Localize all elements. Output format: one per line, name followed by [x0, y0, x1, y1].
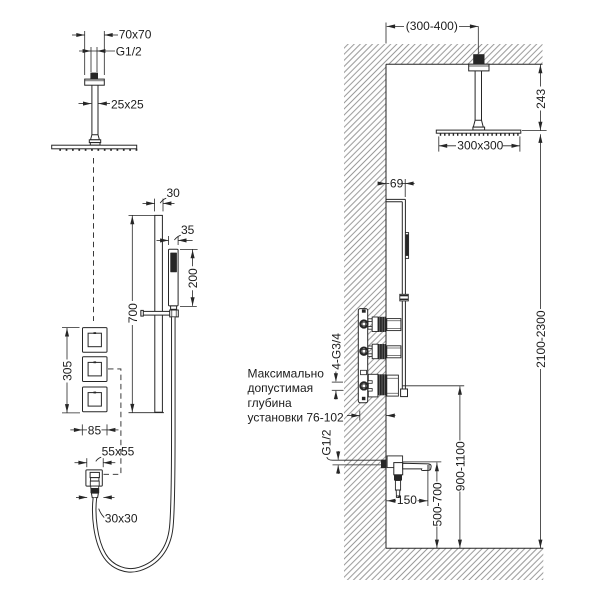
svg-text:70x70: 70x70: [119, 28, 152, 42]
svg-text:4-G3/4: 4-G3/4: [329, 333, 343, 370]
svg-text:150: 150: [397, 493, 417, 507]
svg-text:30: 30: [167, 186, 181, 200]
svg-text:243: 243: [534, 89, 548, 109]
svg-text:(300-400): (300-400): [406, 19, 458, 33]
svg-text:500-700: 500-700: [430, 482, 444, 526]
svg-text:35: 35: [181, 223, 195, 237]
svg-text:глубина: глубина: [248, 396, 292, 410]
svg-text:30x30: 30x30: [105, 511, 138, 525]
svg-text:25x25: 25x25: [111, 97, 144, 111]
svg-text:55x55: 55x55: [102, 444, 135, 458]
svg-text:200: 200: [186, 268, 200, 288]
svg-text:900-1100: 900-1100: [453, 441, 467, 491]
svg-text:установки 76-102: установки 76-102: [248, 411, 345, 425]
svg-text:2100-2300: 2100-2300: [534, 310, 548, 368]
svg-text:300x300: 300x300: [457, 139, 503, 153]
svg-text:69: 69: [390, 176, 404, 190]
svg-text:85: 85: [88, 424, 102, 438]
svg-text:305: 305: [61, 361, 75, 381]
svg-text:G1/2: G1/2: [320, 429, 334, 455]
svg-text:700: 700: [126, 303, 140, 323]
svg-text:допустимая: допустимая: [248, 381, 314, 395]
svg-text:G1/2: G1/2: [116, 44, 142, 58]
svg-text:Максимально: Максимально: [248, 366, 325, 380]
